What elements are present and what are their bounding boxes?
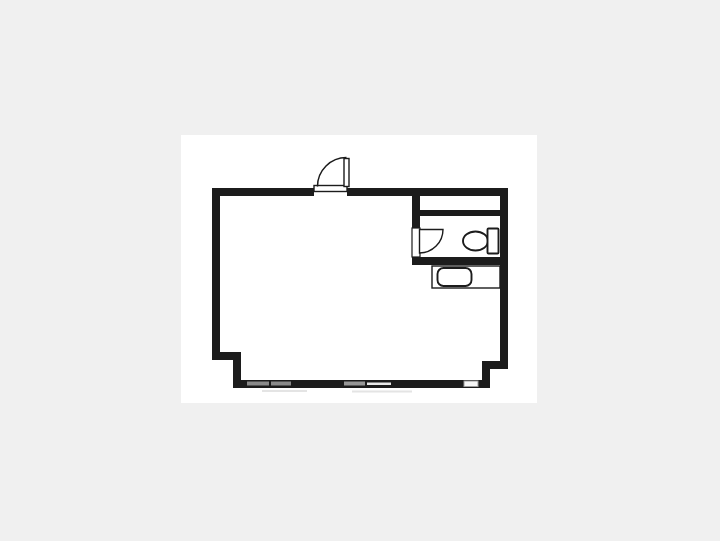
toilet-bowl-icon xyxy=(463,232,488,251)
entrance-threshold xyxy=(314,186,347,192)
window-segment xyxy=(247,382,269,386)
smudge-mark xyxy=(262,390,307,392)
floor-plan-image xyxy=(0,0,720,541)
wall-top-left xyxy=(212,188,314,196)
floor-plan-svg xyxy=(0,0,720,541)
smudge-mark xyxy=(352,391,412,393)
entrance-door-leaf xyxy=(344,159,349,187)
toilet-room-bottom-wall xyxy=(412,257,508,265)
window-segment xyxy=(464,381,478,387)
toilet-tank-icon xyxy=(488,229,499,254)
washbasin-counter xyxy=(432,266,500,288)
compartment-divider xyxy=(420,210,500,216)
toilet-icon xyxy=(463,229,499,254)
wall-right xyxy=(500,188,508,369)
wall-top-right xyxy=(347,188,508,196)
window-segment xyxy=(271,382,291,386)
window-segment xyxy=(367,383,391,386)
wall-left xyxy=(212,188,220,360)
sink-icon xyxy=(438,268,472,286)
window-segment xyxy=(344,382,365,386)
toilet-partition-upper xyxy=(412,196,420,228)
